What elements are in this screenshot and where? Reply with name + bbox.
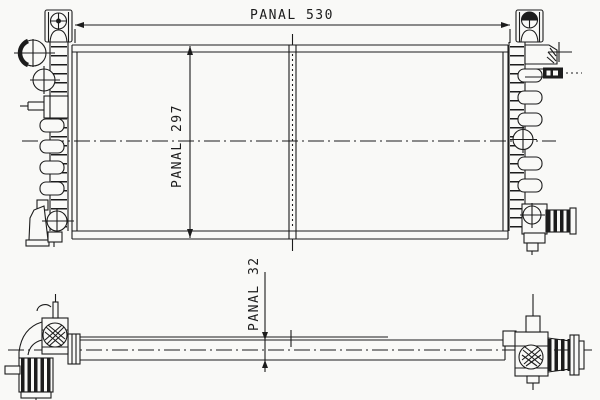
right-port (510, 126, 537, 153)
tank-louver (40, 119, 64, 132)
tank-louver (40, 161, 64, 174)
panel-width-label: PANAL 530 (250, 8, 334, 23)
left-inlet-port (30, 66, 60, 94)
tank-louver (518, 179, 542, 192)
filler-cap (14, 39, 55, 67)
right-hose-fitting (520, 203, 576, 255)
tank-louver (518, 69, 542, 82)
radiator-technical-drawing: PANAL 530 PANAL 297 (0, 0, 600, 400)
tank-louver (518, 113, 542, 126)
height-dimension: PANAL 297 (170, 46, 193, 238)
tank-louver (518, 157, 542, 170)
bottom-right-fitting (503, 294, 584, 390)
left-mounting-bracket (45, 10, 72, 42)
tank-louver (518, 91, 542, 104)
bottom-left-elbow-fitting (5, 294, 80, 400)
depth-dimension: PANAL 32 (247, 256, 268, 372)
bottom-view: PANAL 32 (5, 256, 592, 400)
bottom-view-body (80, 330, 505, 360)
drawing-svg: PANAL 530 PANAL 297 (0, 0, 600, 400)
tank-louver (40, 140, 64, 153)
panel-height-label: PANAL 297 (170, 104, 185, 188)
front-view: PANAL 530 PANAL 297 (14, 8, 582, 255)
radiator-core (72, 45, 508, 239)
panel-depth-label: PANAL 32 (247, 256, 262, 331)
tank-louver (40, 182, 64, 195)
core-center-seam (289, 34, 296, 251)
right-mounting-bracket (516, 10, 543, 42)
side-tab (5, 366, 20, 374)
upper-right-fitting (525, 42, 572, 64)
left-hose-stub (20, 96, 68, 118)
